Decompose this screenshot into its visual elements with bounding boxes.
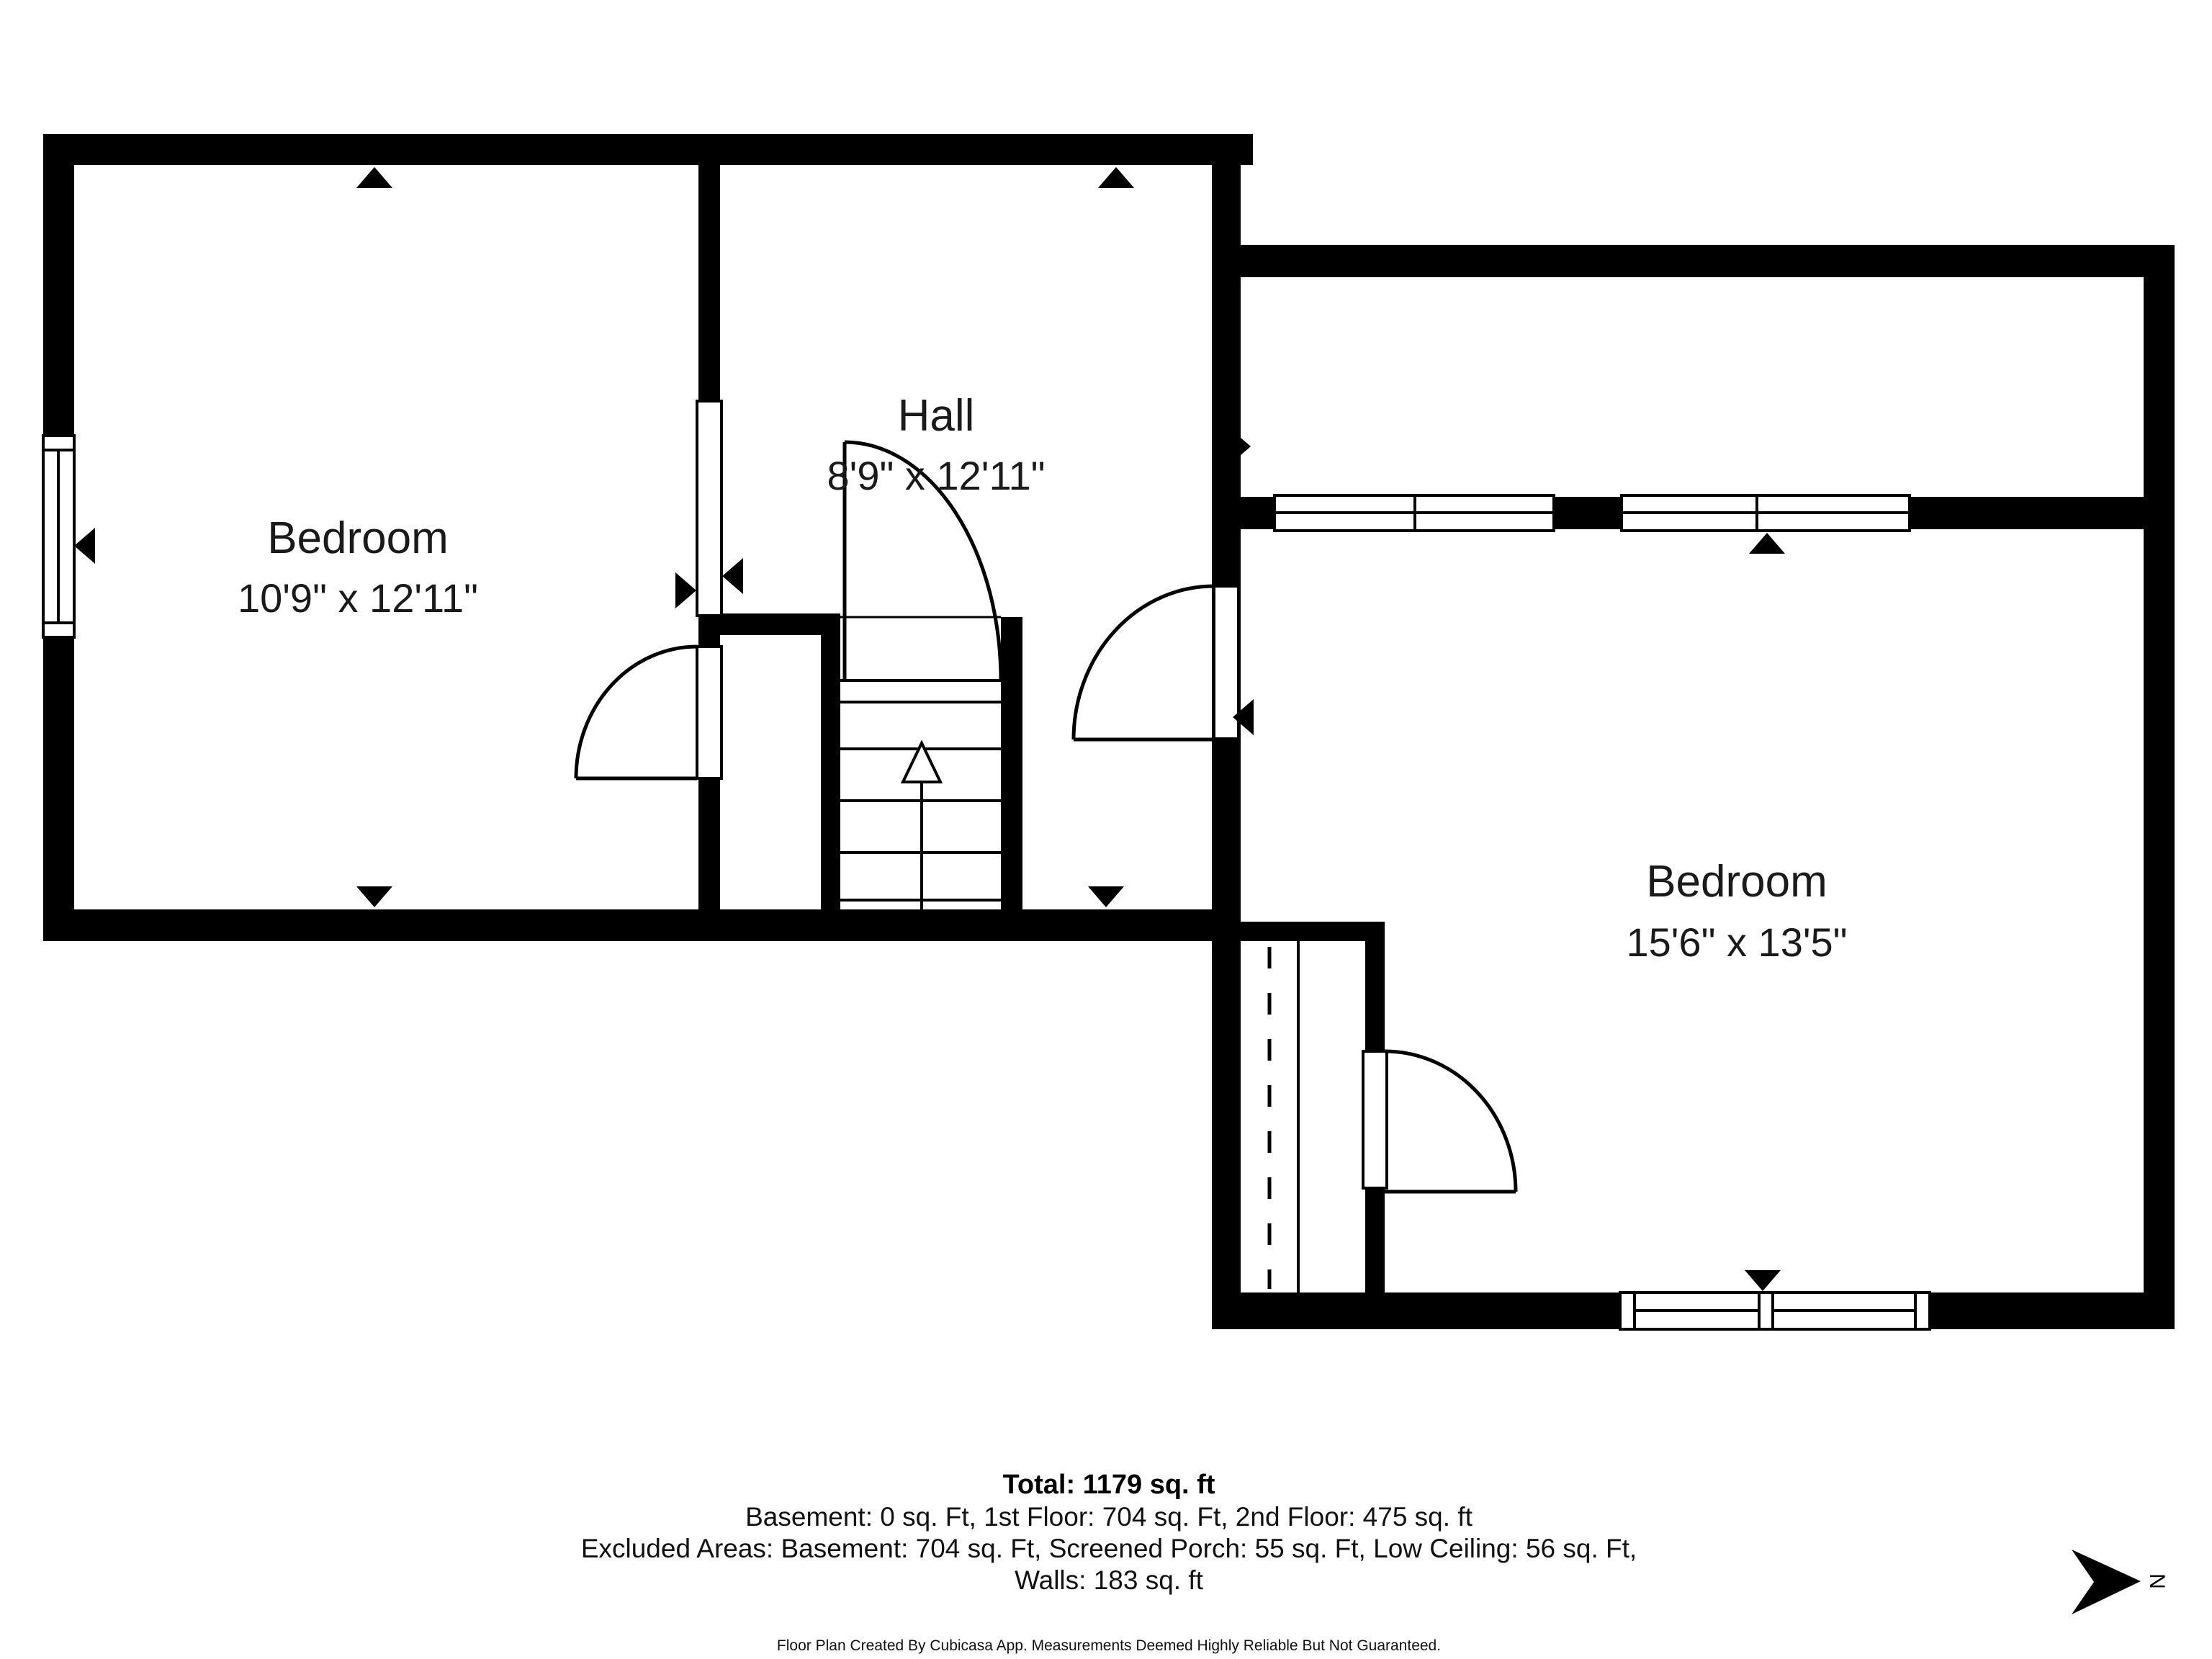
footer: Total: 1179 sq. ft Basement: 0 sq. Ft, 1…: [581, 1470, 1637, 1654]
wall-bottom-left-structure: [43, 909, 1220, 941]
footer-disclaimer: Floor Plan Created By Cubicasa App. Meas…: [777, 1637, 1441, 1654]
room-area-bedroom-right: [1241, 531, 2144, 1292]
wall-closet-top: [718, 613, 821, 635]
room-areas: [74, 165, 2144, 1292]
bedroom-right-window: [1620, 1292, 1930, 1329]
wall-stair-right: [1001, 617, 1022, 909]
room-area-low-ceiling-closet: [1241, 941, 1365, 1292]
compass-north-label: N: [2145, 1573, 2169, 1589]
bedroom-left-window: [43, 436, 74, 637]
footer-walls: Walls: 183 sq. ft: [1015, 1565, 1204, 1595]
compass-north-arrow-icon: [2072, 1550, 2141, 1614]
footer-total: Total: 1179 sq. ft: [1003, 1470, 1215, 1500]
room-area-bedroom-left: [74, 165, 698, 909]
stairs: [840, 617, 1001, 909]
room-area-screened-porch: [1241, 277, 2144, 497]
porch-window-2: [1622, 495, 1910, 531]
room-area-hall: [720, 165, 1212, 613]
hall-pass-through: [697, 401, 721, 616]
footer-excluded: Excluded Areas: Basement: 704 sq. Ft, Sc…: [581, 1534, 1637, 1563]
floor-plan-page: Bedroom 10'9" x 12'11" Hall 8'9" x 12'11…: [0, 0, 2212, 1659]
floor-plan-drawing: Bedroom 10'9" x 12'11" Hall 8'9" x 12'11…: [0, 0, 2212, 1659]
footer-floors: Basement: 0 sq. Ft, 1st Floor: 704 sq. F…: [745, 1502, 1473, 1532]
wall-right-exterior: [2144, 245, 2175, 1329]
wall-top-left-structure: [43, 134, 1253, 165]
marker-down-icon: [1088, 886, 1124, 907]
compass: N: [2072, 1550, 2169, 1614]
wall-stair-left: [821, 613, 840, 909]
porch-window-1: [1274, 495, 1554, 531]
wall-porch-top: [1241, 245, 2175, 277]
